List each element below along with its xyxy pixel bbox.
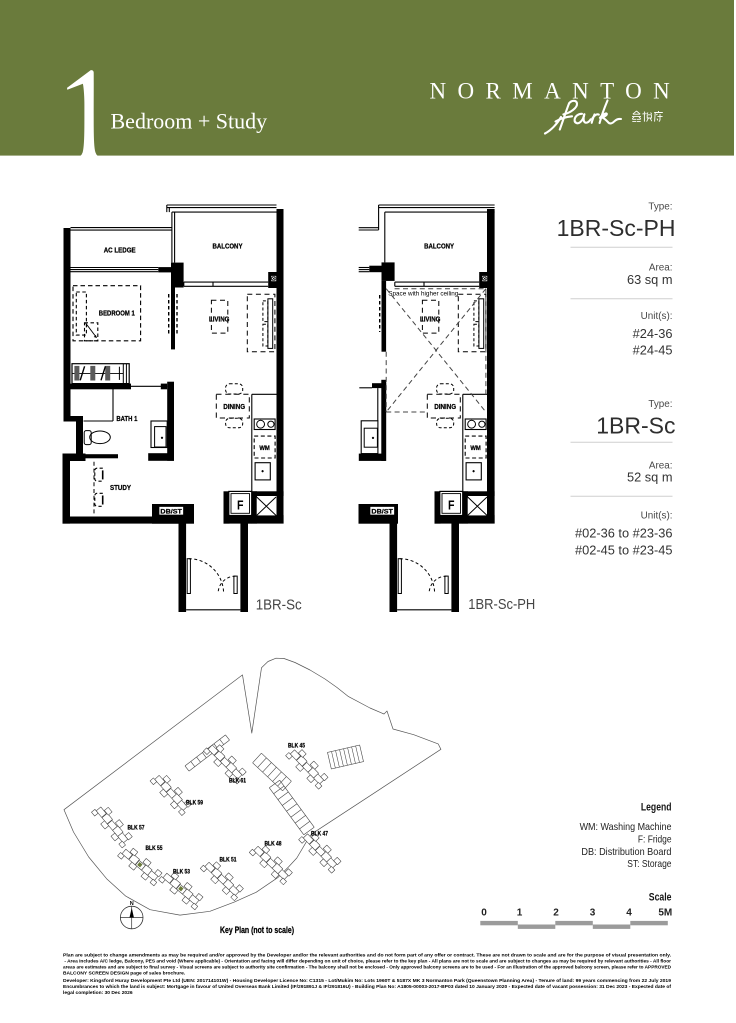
svg-text:F: Fridge: F: Fridge	[638, 833, 672, 845]
svg-text:DB/ST: DB/ST	[371, 508, 393, 515]
svg-text:#02-45 to #23-45: #02-45 to #23-45	[575, 543, 672, 558]
svg-text:1BR-Sc-PH: 1BR-Sc-PH	[557, 215, 676, 241]
svg-text:WM: Washing Machine: WM: Washing Machine	[580, 821, 672, 833]
svg-text:#24-45: #24-45	[633, 343, 673, 358]
svg-text:Developer: Kingsford Huray Dev: Developer: Kingsford Huray Development P…	[63, 978, 671, 984]
svg-text:#24-36: #24-36	[633, 326, 673, 341]
svg-text:2: 2	[553, 908, 559, 919]
svg-text:ST: Storage: ST: Storage	[627, 858, 671, 870]
svg-text:Type:: Type:	[648, 201, 672, 212]
svg-text:BLK 51: BLK 51	[220, 857, 237, 864]
svg-text:Encumbrances to which the land: Encumbrances to which the land is subjec…	[63, 984, 671, 990]
svg-text:Bedroom + Study: Bedroom + Study	[111, 109, 268, 134]
svg-text:BLK 53: BLK 53	[173, 869, 190, 876]
svg-text:3: 3	[590, 908, 596, 919]
svg-text:DB: Distribution Board: DB: Distribution Board	[581, 846, 671, 858]
svg-text:WM: WM	[470, 446, 481, 452]
svg-text:1BR-Sc: 1BR-Sc	[256, 598, 302, 614]
svg-text:Unit(s):: Unit(s):	[641, 511, 673, 522]
svg-text:4: 4	[626, 908, 632, 919]
svg-text:legal completion: 30 Dec 2026: legal completion: 30 Dec 2026	[63, 990, 133, 996]
svg-text:F: F	[448, 499, 455, 513]
svg-text:areas are estimates and are su: areas are estimates and are subject to f…	[63, 965, 671, 971]
svg-text:BLK 55: BLK 55	[146, 845, 163, 852]
svg-text:52 sq m: 52 sq m	[627, 470, 673, 485]
svg-text:DINING: DINING	[223, 404, 245, 411]
svg-text:BEDROOM 1: BEDROOM 1	[99, 311, 135, 318]
svg-text:NORMANTON: NORMANTON	[430, 79, 682, 104]
svg-text:BALCONY: BALCONY	[424, 243, 454, 250]
svg-text:BATH 1: BATH 1	[116, 416, 137, 423]
svg-text:0: 0	[481, 908, 487, 919]
svg-text:1BR-Sc: 1BR-Sc	[596, 413, 675, 439]
svg-text:Legend: Legend	[641, 802, 672, 814]
svg-text:BLK 57: BLK 57	[128, 825, 145, 832]
svg-text:WM: WM	[259, 446, 270, 452]
svg-text:Plan are subject to change ame: Plan are subject to change amendments as…	[63, 953, 672, 959]
svg-text:STUDY: STUDY	[110, 485, 131, 492]
svg-text:BLK 61: BLK 61	[229, 778, 246, 785]
svg-text:Space with higher ceiling: Space with higher ceiling	[388, 290, 458, 297]
svg-text:1: 1	[517, 908, 523, 919]
svg-text:F: F	[237, 499, 244, 513]
svg-text:DB/ST: DB/ST	[160, 508, 182, 515]
svg-text:- Area includes A/C ledge, Bal: - Area includes A/C ledge, Balcony, PES …	[63, 959, 671, 965]
svg-text:#02-36 to #23-36: #02-36 to #23-36	[575, 526, 672, 541]
svg-text:BALCONY: BALCONY	[213, 243, 243, 250]
svg-text:LIVING: LIVING	[209, 317, 230, 324]
svg-text:5M: 5M	[658, 908, 672, 919]
svg-text:DINING: DINING	[434, 404, 456, 411]
svg-text:Key Plan (not to scale): Key Plan (not to scale)	[220, 925, 294, 935]
svg-text:Type:: Type:	[648, 399, 672, 410]
svg-text:63 sq m: 63 sq m	[627, 272, 673, 287]
svg-text:BLK 48: BLK 48	[265, 841, 282, 848]
svg-text:BALCONY SCREEN DESIGN page of: BALCONY SCREEN DESIGN page of sales broc…	[63, 970, 186, 976]
svg-text:Unit(s):: Unit(s):	[641, 311, 673, 322]
svg-text:AC LEDGE: AC LEDGE	[104, 248, 136, 255]
svg-text:BLK 59: BLK 59	[186, 800, 203, 807]
svg-text:BLK 45: BLK 45	[288, 743, 305, 750]
svg-text:1BR-Sc-PH: 1BR-Sc-PH	[468, 597, 535, 613]
svg-text:BLK 47: BLK 47	[311, 831, 328, 838]
svg-text:LIVING: LIVING	[420, 317, 441, 324]
svg-text:Scale: Scale	[649, 892, 672, 904]
svg-text:N: N	[130, 901, 134, 907]
